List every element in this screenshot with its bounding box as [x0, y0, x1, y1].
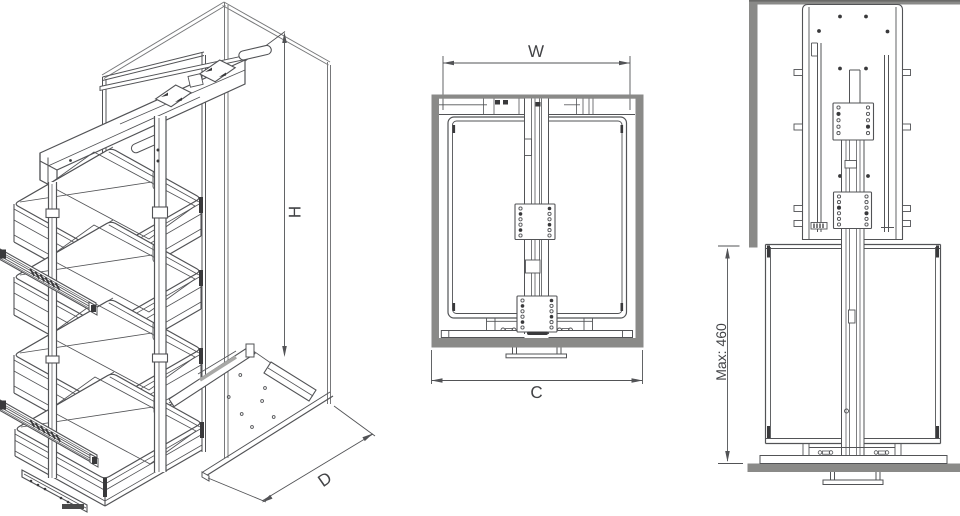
svg-text:H: H	[286, 206, 305, 218]
svg-text:W: W	[528, 42, 544, 61]
svg-text:C: C	[530, 383, 542, 402]
svg-text:Max: 460: Max: 460	[713, 323, 729, 381]
